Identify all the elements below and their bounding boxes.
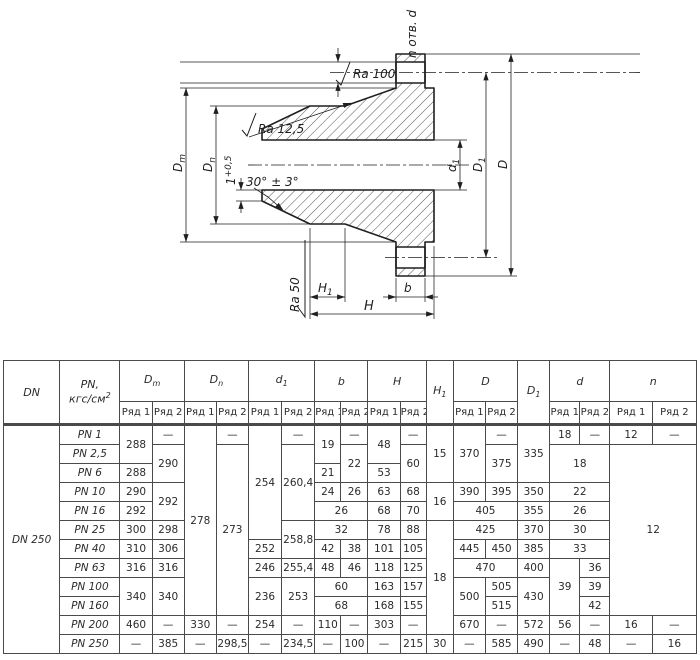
roughness-check-ra100 — [336, 62, 350, 85]
value-cell: 48 — [368, 425, 400, 464]
value-cell: 355 — [518, 502, 550, 521]
value-cell: 385 — [518, 540, 550, 559]
value-cell: 16 — [652, 635, 696, 654]
value-cell: 46 — [341, 559, 368, 578]
value-cell: 33 — [550, 540, 610, 559]
value-cell: — — [216, 616, 248, 635]
header-cell: Ряд 1 — [184, 402, 216, 425]
header-cell: Ряд 2 — [216, 402, 248, 425]
value-cell: 101 — [368, 540, 400, 559]
header-cell: Ряд 2 — [485, 402, 517, 425]
holes-count-label: n отв. d — [405, 10, 419, 58]
header-cell: Ряд 2 — [282, 402, 315, 425]
header-cell: Ряд 1 — [248, 402, 281, 425]
pn-cell: PN 40 — [60, 540, 120, 559]
dim-label-b: b — [404, 281, 412, 295]
value-cell: 252 — [248, 540, 281, 559]
value-cell: 32 — [315, 521, 368, 540]
value-cell: 42 — [580, 597, 610, 616]
header-cell: Ряд 1 — [550, 402, 580, 425]
value-cell: 163 — [368, 578, 400, 597]
header-cell: Ряд 2 — [341, 402, 368, 425]
value-cell: 288 — [120, 464, 152, 483]
value-cell: 298,5 — [216, 635, 248, 654]
roughness-check-ra125 — [242, 113, 256, 136]
header-cell: Ряд 1 — [315, 402, 341, 425]
table-row: PN 2,5290273260,422603751812 — [4, 445, 697, 464]
ra50-label: Ra 50 — [288, 277, 302, 312]
value-cell: 236 — [248, 578, 281, 616]
ra125-label: Ra 12,5 — [258, 122, 304, 136]
pn-cell: PN 250 — [60, 635, 120, 654]
pn-cell: PN 100 — [60, 578, 120, 597]
value-cell: 18 — [550, 425, 580, 445]
header-cell: H1 — [426, 361, 453, 425]
value-cell: — — [550, 635, 580, 654]
value-cell: 572 — [518, 616, 550, 635]
value-cell: 24 — [315, 483, 341, 502]
value-cell: — — [485, 616, 517, 635]
value-cell: 246 — [248, 559, 281, 578]
header-cell: PN,кгс/см2 — [60, 361, 120, 425]
value-cell: 290 — [152, 445, 184, 483]
value-cell: 78 — [368, 521, 400, 540]
value-cell: 670 — [453, 616, 485, 635]
value-cell: 375 — [485, 445, 517, 483]
value-cell: 30 — [550, 521, 610, 540]
value-cell: 350 — [518, 483, 550, 502]
value-cell: 316 — [120, 559, 152, 578]
pn-cell: PN 10 — [60, 483, 120, 502]
value-cell: — — [184, 635, 216, 654]
value-cell: 16 — [426, 483, 453, 521]
value-cell: — — [610, 635, 652, 654]
table-row: PN 250—385—298,5—234,5—100—21530—585490—… — [4, 635, 697, 654]
value-cell: 12 — [610, 425, 652, 445]
dn-cell: DN 250 — [4, 425, 60, 654]
header-cell: DN — [4, 361, 60, 425]
value-cell: 340 — [152, 578, 184, 616]
pn-cell: PN 160 — [60, 597, 120, 616]
header-cell: Dm — [120, 361, 184, 402]
header-cell: Dn — [184, 361, 248, 402]
header-cell: D — [453, 361, 517, 402]
value-cell: — — [453, 635, 485, 654]
value-cell: — — [580, 616, 610, 635]
value-cell: 157 — [400, 578, 426, 597]
value-cell: 330 — [184, 616, 216, 635]
table-wrapper: DNPN,кгс/см2DmDnd1bHH1DD1dnРяд 1Ряд 2Ряд… — [0, 360, 700, 654]
value-cell: 39 — [550, 559, 580, 616]
value-cell: 26 — [341, 483, 368, 502]
header-cell: Ряд 2 — [400, 402, 426, 425]
value-cell: 63 — [368, 483, 400, 502]
pn-cell: PN 200 — [60, 616, 120, 635]
value-cell: 490 — [518, 635, 550, 654]
value-cell: 16 — [610, 616, 652, 635]
flange-technical-drawing: n отв. d Ra 100 Ra 12,5 30° ± 3° 1+0,5 D… — [0, 0, 700, 360]
value-cell: 215 — [400, 635, 426, 654]
value-cell: — — [248, 635, 281, 654]
header-cell: Ряд 2 — [652, 402, 696, 425]
value-cell: — — [368, 635, 400, 654]
header-cell: d1 — [248, 361, 314, 402]
value-cell: 335 — [518, 425, 550, 483]
value-cell: 36 — [580, 559, 610, 578]
value-cell: 258,8 — [282, 521, 315, 559]
header-cell: Ряд 1 — [610, 402, 652, 425]
value-cell: — — [400, 616, 426, 635]
value-cell: 19 — [315, 425, 341, 464]
value-cell: 470 — [453, 559, 517, 578]
value-cell: 56 — [550, 616, 580, 635]
land-dim-label: 1+0,5 — [224, 155, 238, 185]
value-cell: 88 — [400, 521, 426, 540]
value-cell: 48 — [580, 635, 610, 654]
value-cell: 385 — [152, 635, 184, 654]
header-cell: Ряд 1 — [120, 402, 152, 425]
value-cell: 70 — [400, 502, 426, 521]
value-cell: 445 — [453, 540, 485, 559]
value-cell: 298 — [152, 521, 184, 540]
value-cell: 450 — [485, 540, 517, 559]
pn-cell: PN 1 — [60, 425, 120, 445]
chamfer-angle-label: 30° ± 3° — [246, 175, 299, 189]
dim-label-h: H — [364, 299, 374, 314]
table-row: PN 1606816815551542 — [4, 597, 697, 616]
value-cell: 42 — [315, 540, 341, 559]
table-row: PN 1003403402362536016315750050543039 — [4, 578, 697, 597]
value-cell: 68 — [368, 502, 400, 521]
value-cell: — — [120, 635, 152, 654]
value-cell: 306 — [152, 540, 184, 559]
dim-label-dd1: D1 — [471, 157, 488, 172]
header-cell: n — [610, 361, 697, 402]
value-cell: 460 — [120, 616, 152, 635]
value-cell: — — [485, 425, 517, 445]
pn-cell: PN 63 — [60, 559, 120, 578]
table-row: PN 63316316246255,448461181254704003936 — [4, 559, 697, 578]
value-cell: 26 — [550, 502, 610, 521]
header-cell: Ряд 2 — [152, 402, 184, 425]
value-cell: 26 — [315, 502, 368, 521]
value-cell: 48 — [315, 559, 341, 578]
dim-label-dn: Dn — [201, 157, 218, 172]
value-cell: 105 — [400, 540, 426, 559]
value-cell: — — [580, 425, 610, 445]
header-cell: d — [550, 361, 610, 402]
value-cell: 100 — [341, 635, 368, 654]
value-cell: 12 — [610, 445, 697, 616]
value-cell: 425 — [453, 521, 517, 540]
header-cell: H — [368, 361, 426, 402]
value-cell: — — [152, 425, 184, 445]
value-cell: 370 — [518, 521, 550, 540]
value-cell: 234,5 — [282, 635, 315, 654]
value-cell: 60 — [315, 578, 368, 597]
value-cell: 292 — [152, 483, 184, 521]
dim-label-d1: d1 — [445, 159, 462, 172]
value-cell: 300 — [120, 521, 152, 540]
table-row: PN 25300298258,83278881842537030 — [4, 521, 697, 540]
value-cell: 505 — [485, 578, 517, 597]
value-cell: 68 — [400, 483, 426, 502]
value-cell: 585 — [485, 635, 517, 654]
ra100-label: Ra 100 — [353, 67, 396, 81]
dim-label-d: D — [496, 160, 510, 169]
value-cell: 255,4 — [282, 559, 315, 578]
value-cell: 254 — [248, 616, 281, 635]
value-cell: 370 — [453, 425, 485, 483]
value-cell: 316 — [152, 559, 184, 578]
page: n отв. d Ra 100 Ra 12,5 30° ± 3° 1+0,5 D… — [0, 0, 700, 660]
value-cell: 500 — [453, 578, 485, 616]
value-cell: — — [282, 425, 315, 445]
value-cell: 253 — [282, 578, 315, 616]
value-cell: — — [152, 616, 184, 635]
header-cell: Ряд 1 — [453, 402, 485, 425]
value-cell: 30 — [426, 635, 453, 654]
value-cell: 273 — [216, 445, 248, 616]
value-cell: 260,4 — [282, 445, 315, 521]
pn-cell: PN 6 — [60, 464, 120, 483]
value-cell: 340 — [120, 578, 152, 616]
value-cell: 18 — [550, 445, 610, 483]
value-cell: 278 — [184, 425, 216, 616]
header-cell: Ряд 2 — [580, 402, 610, 425]
value-cell: 21 — [315, 464, 341, 483]
value-cell: 292 — [120, 502, 152, 521]
value-cell: 400 — [518, 559, 550, 578]
table-row: PN 40310306252423810110544545038533 — [4, 540, 697, 559]
center-lines — [248, 73, 640, 258]
value-cell: 168 — [368, 597, 400, 616]
table-row: DN 250PN 1288—278—254—19—48—15370—33518—… — [4, 425, 697, 445]
value-cell: 254 — [248, 425, 281, 540]
value-cell: 310 — [120, 540, 152, 559]
value-cell: — — [282, 616, 315, 635]
value-cell: 515 — [485, 597, 517, 616]
value-cell: — — [315, 635, 341, 654]
dim-label-dm: Dm — [171, 154, 188, 172]
value-cell: 110 — [315, 616, 341, 635]
value-cell: 18 — [426, 521, 453, 635]
pn-cell: PN 2,5 — [60, 445, 120, 464]
value-cell: 15 — [426, 425, 453, 483]
value-cell: 290 — [120, 483, 152, 502]
value-cell: 53 — [368, 464, 400, 483]
pn-cell: PN 25 — [60, 521, 120, 540]
value-cell: 395 — [485, 483, 517, 502]
table-row: PN 1629226687040535526 — [4, 502, 697, 521]
header-cell: b — [315, 361, 368, 402]
table-row: PN 200460—330—254—110—303—670—57256—16— — [4, 616, 697, 635]
value-cell: 60 — [400, 445, 426, 483]
value-cell: — — [652, 425, 696, 445]
value-cell: 390 — [453, 483, 485, 502]
value-cell: 288 — [120, 425, 152, 464]
value-cell: 118 — [368, 559, 400, 578]
value-cell: 303 — [368, 616, 400, 635]
value-cell: — — [400, 425, 426, 445]
value-cell: 155 — [400, 597, 426, 616]
value-cell: 22 — [341, 445, 368, 483]
value-cell: — — [341, 616, 368, 635]
value-cell: 39 — [580, 578, 610, 597]
value-cell: 430 — [518, 578, 550, 616]
value-cell: 405 — [453, 502, 517, 521]
value-cell: 22 — [550, 483, 610, 502]
table-row: PN 10290292242663681639039535022 — [4, 483, 697, 502]
value-cell: — — [341, 425, 368, 445]
value-cell: 68 — [315, 597, 368, 616]
value-cell: 125 — [400, 559, 426, 578]
flange-dimensions-table: DNPN,кгс/см2DmDnd1bHH1DD1dnРяд 1Ряд 2Ряд… — [3, 360, 697, 654]
pn-cell: PN 16 — [60, 502, 120, 521]
header-cell: Ряд 1 — [368, 402, 400, 425]
header-cell: D1 — [518, 361, 550, 425]
value-cell: 38 — [341, 540, 368, 559]
value-cell: — — [216, 425, 248, 445]
dim-label-h1: H1 — [318, 281, 333, 298]
value-cell: — — [652, 616, 696, 635]
